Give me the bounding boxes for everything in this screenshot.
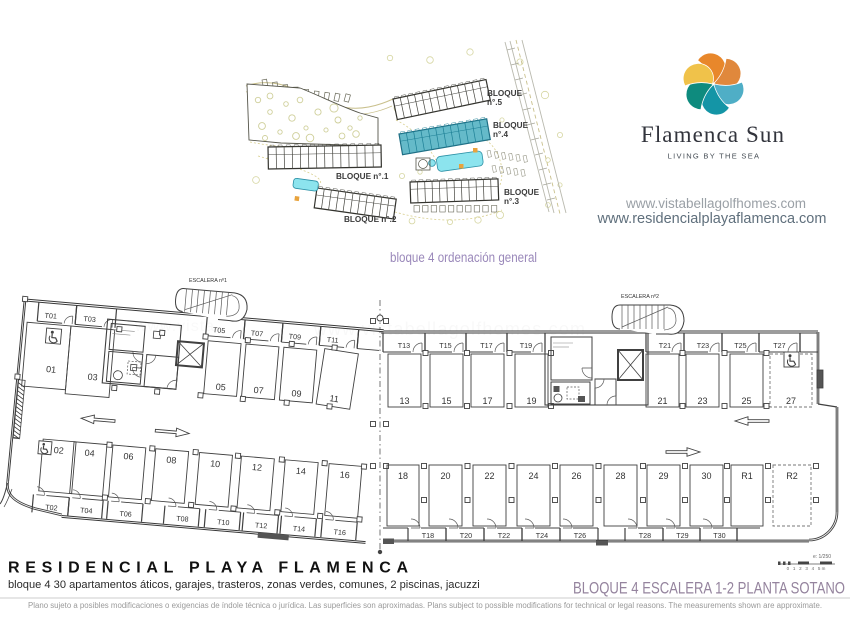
svg-text:T22: T22 — [498, 531, 510, 540]
svg-text:03: 03 — [87, 372, 98, 383]
svg-text:BLOQUE n°.2: BLOQUE n°.2 — [344, 215, 397, 224]
svg-text:29: 29 — [658, 471, 668, 481]
svg-text:02: 02 — [53, 445, 64, 456]
svg-text:26: 26 — [571, 471, 581, 481]
svg-text:28: 28 — [615, 471, 625, 481]
svg-text:R1: R1 — [741, 471, 753, 481]
svg-text:27: 27 — [786, 396, 796, 406]
svg-text:T26: T26 — [574, 531, 586, 540]
svg-text:30: 30 — [701, 471, 711, 481]
svg-text:n°.5: n°.5 — [487, 98, 503, 107]
svg-text:T21: T21 — [659, 341, 671, 350]
svg-text:0 1 2 3 4 5 m: 0 1 2 3 4 5 m — [787, 566, 826, 571]
svg-text:15: 15 — [441, 396, 451, 406]
svg-text:T11: T11 — [326, 335, 339, 345]
svg-text:T30: T30 — [713, 531, 725, 540]
svg-text:e: 1/250: e: 1/250 — [813, 554, 831, 560]
svg-text:06: 06 — [123, 451, 134, 462]
svg-text:17: 17 — [482, 396, 492, 406]
svg-text:T28: T28 — [639, 531, 651, 540]
svg-text:T17: T17 — [480, 341, 492, 350]
svg-text:T02: T02 — [45, 502, 58, 512]
svg-text:T18: T18 — [422, 531, 434, 540]
svg-text:T13: T13 — [398, 341, 410, 350]
svg-text:T14: T14 — [292, 524, 305, 534]
svg-text:21: 21 — [657, 396, 667, 406]
svg-text:n°.3: n°.3 — [504, 197, 520, 206]
svg-text:13: 13 — [399, 396, 409, 406]
svg-text:18: 18 — [398, 471, 408, 481]
svg-text:01: 01 — [46, 364, 57, 375]
svg-text:BLOQUE n°.1: BLOQUE n°.1 — [336, 172, 389, 181]
svg-text:04: 04 — [84, 448, 95, 459]
svg-text:BLOQUE: BLOQUE — [493, 121, 529, 130]
svg-text:www.residencialplayaflamenca.c: www.residencialplayaflamenca.com — [597, 211, 827, 227]
svg-text:11: 11 — [329, 393, 340, 404]
svg-text:14: 14 — [295, 466, 306, 477]
svg-text:23: 23 — [697, 396, 707, 406]
svg-text:T05: T05 — [213, 325, 226, 335]
svg-text:bloque 4 ordenación general: bloque 4 ordenación general — [390, 250, 537, 265]
svg-text:LIVING BY THE SEA: LIVING BY THE SEA — [668, 152, 761, 161]
svg-text:Flamenca Sun: Flamenca Sun — [641, 122, 785, 147]
svg-text:T08: T08 — [176, 514, 189, 524]
svg-text:T24: T24 — [536, 531, 548, 540]
svg-text:T25: T25 — [734, 341, 746, 350]
svg-text:RESIDENCIAL PLAYA FLAMENCA: RESIDENCIAL PLAYA FLAMENCA — [8, 560, 414, 577]
svg-text:www.vista: www.vista — [134, 318, 215, 335]
svg-text:T01: T01 — [44, 311, 57, 321]
svg-text:T15: T15 — [439, 341, 451, 350]
svg-text:19: 19 — [526, 396, 536, 406]
svg-text:ESCALERA nº2: ESCALERA nº2 — [621, 294, 659, 300]
svg-text:R2: R2 — [786, 471, 798, 481]
svg-text:Plano sujeto a posibles modifi: Plano sujeto a posibles modificaciones o… — [28, 601, 822, 610]
svg-text:20: 20 — [440, 471, 450, 481]
svg-text:T12: T12 — [255, 520, 268, 530]
svg-text:05: 05 — [215, 382, 226, 393]
svg-text:25: 25 — [741, 396, 751, 406]
svg-text:09: 09 — [291, 388, 302, 399]
svg-text:BLOQUE 4 ESCALERA 1-2 PLANTA S: BLOQUE 4 ESCALERA 1-2 PLANTA SOTANO — [573, 580, 845, 598]
svg-text:24: 24 — [528, 471, 538, 481]
svg-text:n°.4: n°.4 — [493, 130, 509, 139]
svg-text:22: 22 — [484, 471, 494, 481]
svg-text:www.vistabellagolfhomes.com: www.vistabellagolfhomes.com — [625, 196, 806, 211]
svg-text:T03: T03 — [83, 314, 96, 324]
svg-text:T19: T19 — [520, 341, 532, 350]
svg-text:T09: T09 — [288, 332, 301, 342]
svg-text:T27: T27 — [773, 341, 785, 350]
svg-text:T16: T16 — [333, 527, 346, 537]
svg-text:ESCALERA nº1: ESCALERA nº1 — [189, 278, 227, 284]
svg-text:T06: T06 — [119, 509, 132, 519]
svg-text:16: 16 — [339, 470, 350, 481]
svg-text:T04: T04 — [80, 505, 93, 515]
svg-text:BLOQUE: BLOQUE — [504, 188, 540, 197]
svg-text:10: 10 — [210, 458, 221, 469]
svg-text:T29: T29 — [676, 531, 688, 540]
svg-text:07: 07 — [253, 385, 264, 396]
svg-text:T23: T23 — [697, 341, 709, 350]
svg-text:T07: T07 — [250, 328, 263, 338]
svg-text:bloque 4 30 apartamentos ático: bloque 4 30 apartamentos áticos, garajes… — [8, 579, 480, 591]
svg-text:T20: T20 — [460, 531, 472, 540]
svg-text:08: 08 — [166, 455, 177, 466]
svg-text:T10: T10 — [217, 517, 230, 527]
svg-text:12: 12 — [252, 462, 263, 473]
svg-text:BLOQUE: BLOQUE — [487, 89, 523, 98]
